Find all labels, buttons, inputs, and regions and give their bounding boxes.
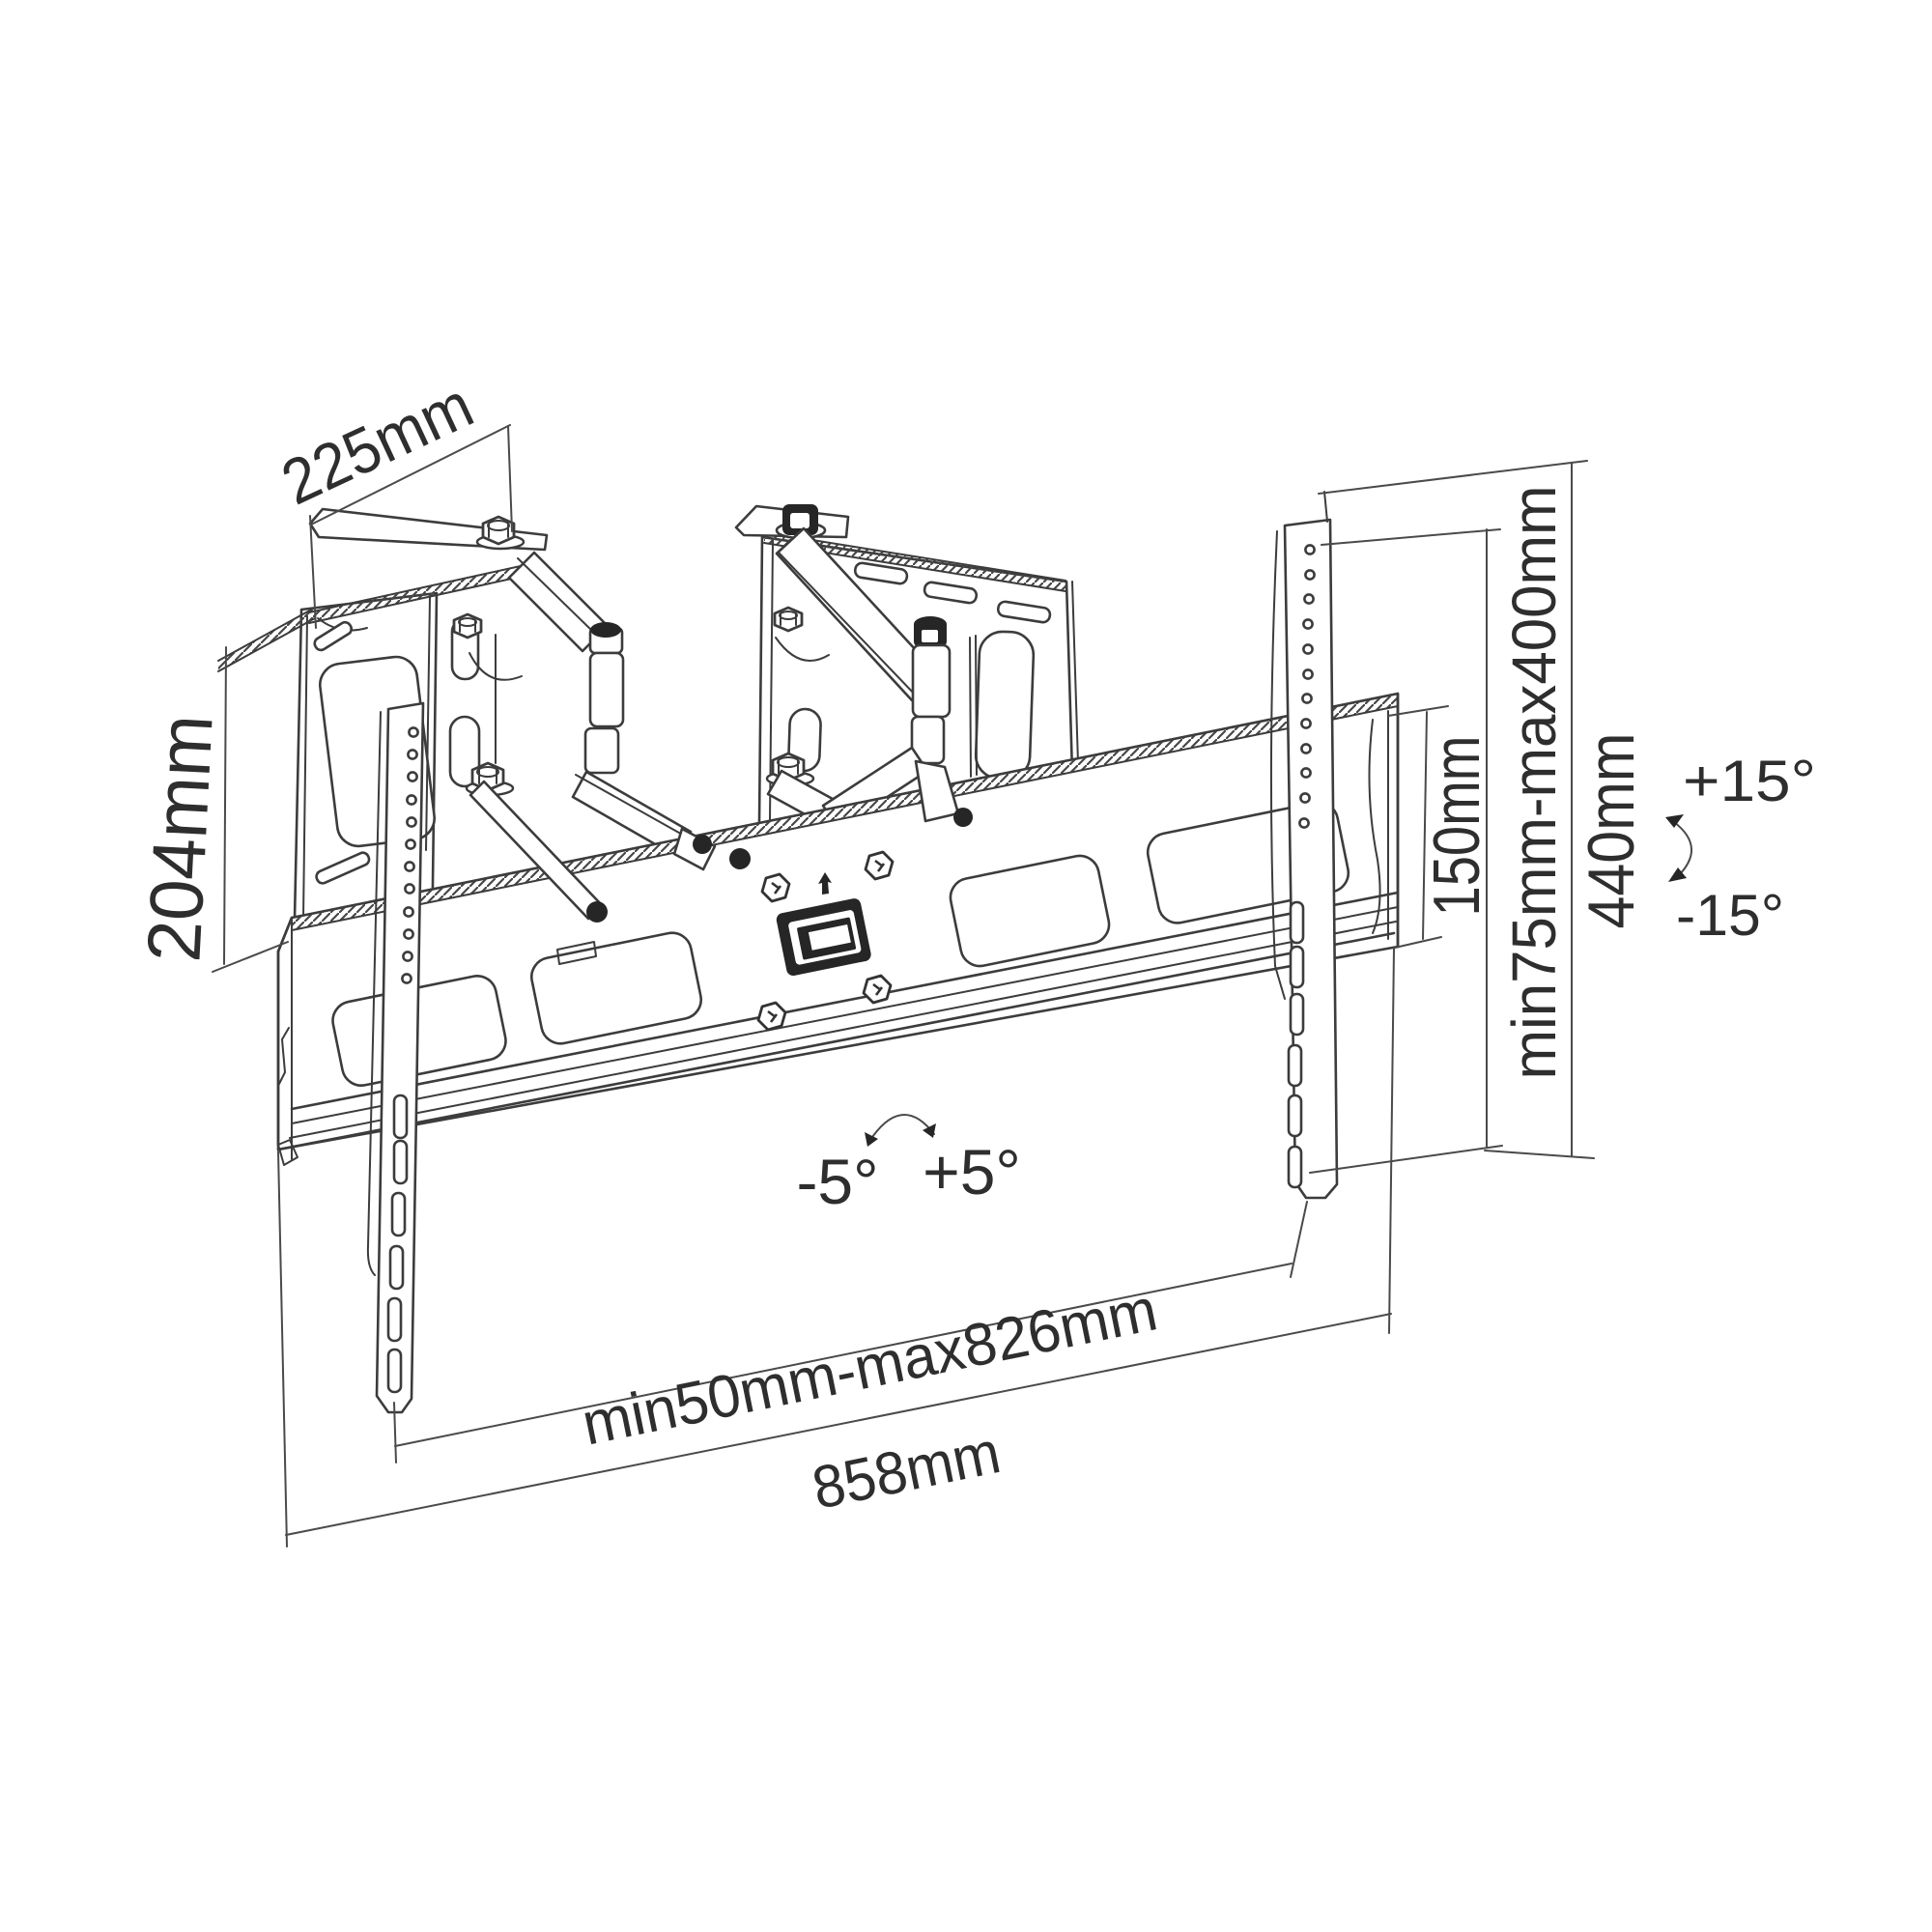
svg-text:min75mm-max400mm: min75mm-max400mm — [1499, 486, 1569, 1080]
svg-text:204mm: 204mm — [130, 713, 228, 964]
svg-text:150mm: 150mm — [1420, 736, 1493, 917]
svg-text:440mm: 440mm — [1575, 733, 1648, 929]
svg-text:+5°: +5° — [923, 1136, 1021, 1207]
svg-text:-5°: -5° — [796, 1146, 878, 1217]
svg-text:-15°: -15° — [1676, 883, 1784, 948]
svg-text:+15°: +15° — [1683, 749, 1816, 813]
